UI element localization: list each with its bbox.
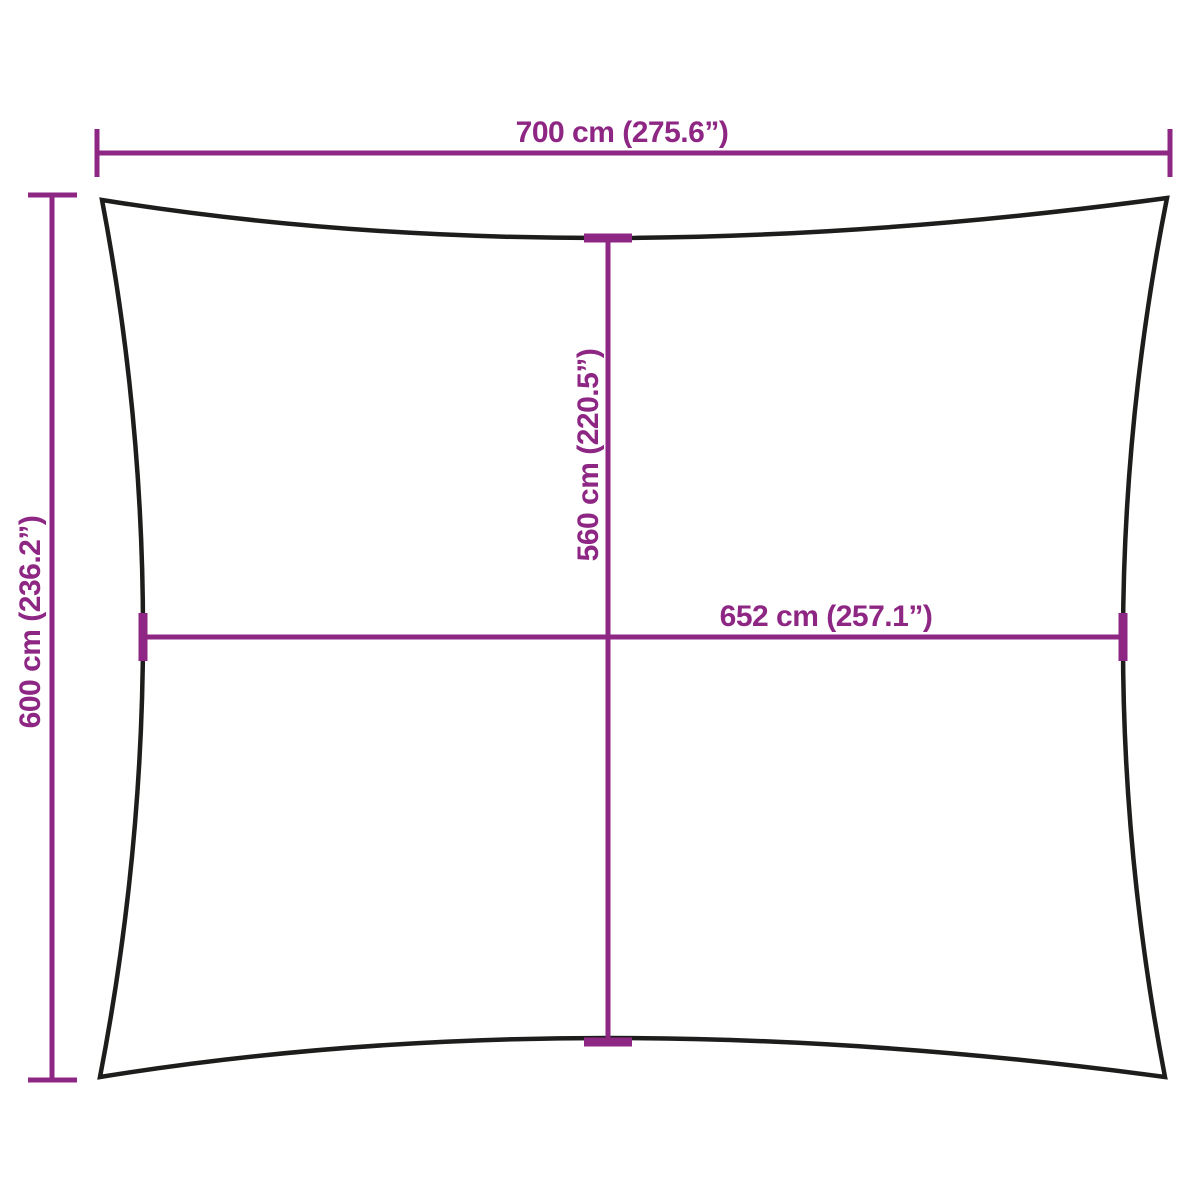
- inner-width-label: 652 cm (257.1”): [720, 600, 933, 633]
- inner-height-label: 560 cm (220.5”): [572, 349, 605, 562]
- left-height-label: 600 cm (236.2”): [14, 516, 47, 729]
- inner-width-dimension: [143, 613, 1123, 661]
- shade-sail-dimension-diagram: 700 cm (275.6”) 600 cm (236.2”) 560 cm (…: [0, 0, 1200, 1200]
- diagram-canvas: 700 cm (275.6”) 600 cm (236.2”) 560 cm (…: [0, 0, 1200, 1200]
- top-width-label: 700 cm (275.6”): [516, 116, 729, 149]
